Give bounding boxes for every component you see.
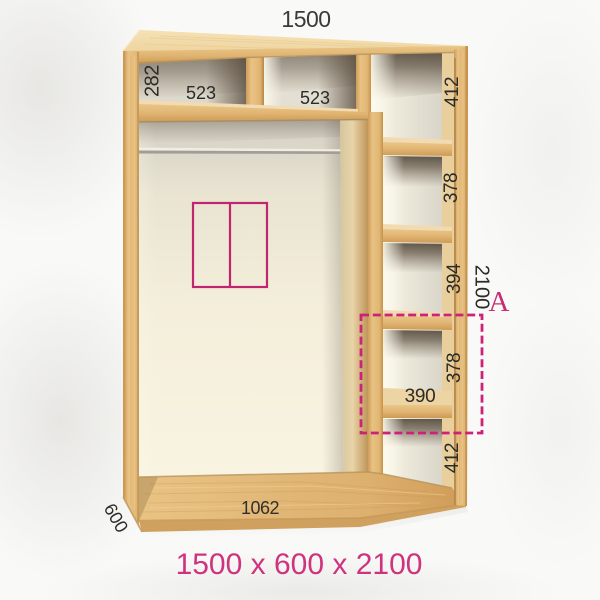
- svg-text:1062: 1062: [241, 498, 280, 518]
- svg-text:282: 282: [141, 65, 163, 97]
- svg-text:412: 412: [442, 443, 463, 473]
- svg-text:1500 x 600 x 2100: 1500 x 600 x 2100: [176, 548, 423, 581]
- svg-text:412: 412: [442, 77, 463, 107]
- svg-text:394: 394: [444, 263, 465, 294]
- svg-text:523: 523: [186, 83, 216, 103]
- svg-text:378: 378: [444, 353, 465, 383]
- svg-text:378: 378: [441, 173, 462, 203]
- svg-text:390: 390: [405, 386, 436, 407]
- svg-text:A: A: [489, 286, 510, 318]
- svg-text:523: 523: [300, 88, 330, 108]
- svg-text:1500: 1500: [281, 6, 330, 32]
